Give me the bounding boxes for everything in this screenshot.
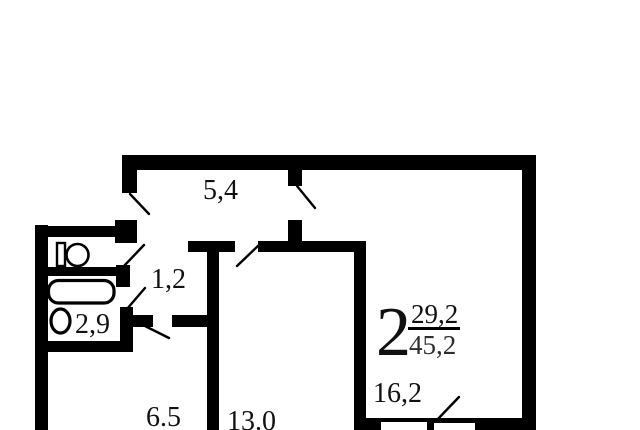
summary-rooms-count: 2 <box>376 305 411 361</box>
room-area-label-hallway: 6.5 <box>146 403 181 430</box>
floor-plan: 5,4 1,2 2,9 6.5 13.0 16,2 2 29,2 45,2 <box>0 0 640 430</box>
room-area-label-room-a: 13.0 <box>227 407 276 430</box>
toilet-icon <box>67 244 89 266</box>
door-swing-room-b <box>297 186 315 208</box>
door-swing-wc <box>124 245 144 266</box>
sink-icon <box>51 309 70 333</box>
door-swing-bathroom <box>127 288 145 309</box>
room-area-label-wc: 1,2 <box>151 265 186 294</box>
fixtures-layer <box>0 0 640 430</box>
toilet-cistern-icon <box>57 243 65 266</box>
summary-total-area: 45,2 <box>409 332 456 359</box>
door-swing-balcony <box>436 397 459 421</box>
room-area-label-bathroom: 2,9 <box>75 310 110 339</box>
summary-living-area: 29,2 <box>411 301 458 328</box>
door-swing-hallway <box>145 326 169 338</box>
room-area-label-corridor: 5,4 <box>203 176 238 205</box>
door-swing-corridor <box>130 194 149 214</box>
room-area-label-room-b: 16,2 <box>373 379 422 408</box>
bathtub-icon <box>49 281 115 304</box>
door-swing-room-a <box>237 244 260 266</box>
